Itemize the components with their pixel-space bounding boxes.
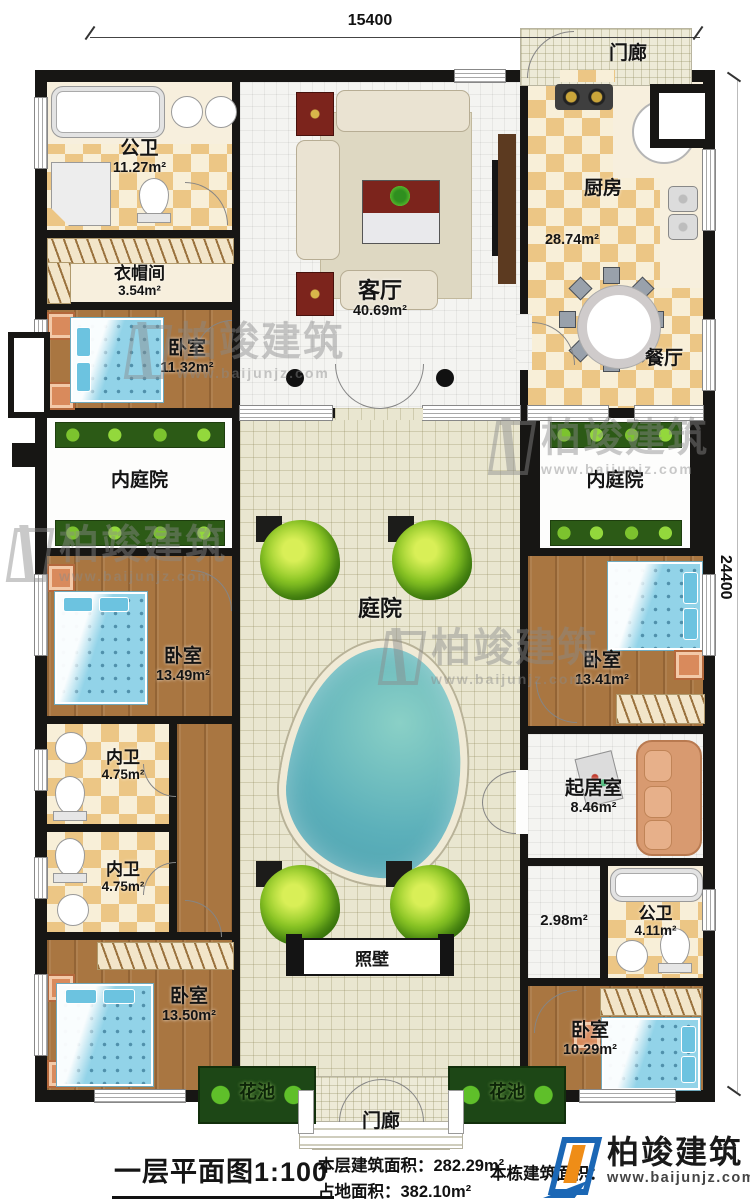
screen-wall-cap [286, 934, 302, 976]
room-label-sitting: 起居室8.46m² [536, 778, 651, 816]
room-label-flowerbed-right: 花池 [450, 1082, 564, 1103]
window [703, 890, 715, 930]
window [35, 98, 47, 168]
column [286, 369, 304, 387]
dining-chair [603, 267, 620, 284]
window [35, 975, 47, 1055]
wall-stub [12, 443, 36, 467]
room-label-flowerbed-left: 花池 [200, 1082, 314, 1103]
column [436, 369, 454, 387]
window [423, 406, 520, 420]
window [580, 1090, 675, 1102]
kitchen-area-label: 28.74m² [528, 232, 616, 249]
room-living: 客厅40.69m² [240, 82, 520, 408]
nightstand [674, 650, 704, 680]
door-opening [516, 770, 528, 834]
plan-body: 公卫11.27m² 衣帽间3.54m² 卧室11.32m² 内庭院 [35, 70, 715, 1102]
room-courtyard-left: 内庭院 [47, 418, 232, 548]
company-logo: 柏竣建筑 www.baijunjz.com [545, 1136, 750, 1198]
wall-niche [8, 332, 50, 418]
stove [555, 84, 613, 110]
room-label-bedroom-a: 卧室11.32m² [135, 338, 239, 376]
room-ensuite-2: 内卫4.75m² [47, 832, 169, 932]
wardrobe [97, 942, 234, 970]
room-ensuite-1: 内卫4.75m² [47, 724, 169, 824]
dimension-line-right [737, 80, 738, 1092]
room-sitting: 起居室8.46m² [528, 734, 703, 858]
nightstand [47, 564, 75, 592]
room-label-porch-top: 门廊 [583, 43, 673, 65]
bathtub [51, 86, 165, 138]
room-label-porch-bottom: 门廊 [313, 1111, 449, 1133]
window [703, 575, 715, 655]
sink [171, 96, 203, 128]
bathtub [610, 868, 703, 902]
door-opening [335, 408, 423, 420]
room-label-bedroom-d: 卧室13.41m² [542, 650, 662, 688]
dimension-tick [727, 1086, 741, 1097]
cloak-rack [47, 238, 234, 264]
wardrobe [600, 988, 702, 1016]
sofa [296, 140, 340, 260]
side-table [296, 92, 334, 136]
dimension-height-label: 24400 [716, 555, 734, 600]
room-hall: 2.98m² [528, 866, 600, 978]
window [635, 406, 703, 420]
land-area-line: 占地面积：382.10m² [318, 1178, 471, 1202]
room-cloakroom: 衣帽间3.54m² [47, 238, 232, 302]
room-label-bedroom-b: 卧室13.49m² [129, 646, 237, 684]
room-label-courtyard-right: 内庭院 [540, 470, 690, 492]
room-label-courtyard: 庭院 [240, 596, 520, 621]
kitchen-sink [668, 214, 698, 240]
screen-wall: 照壁 [302, 938, 442, 976]
door-opening [560, 70, 615, 82]
dining-chair [568, 276, 592, 300]
window [703, 320, 715, 390]
sofa [336, 90, 470, 132]
wardrobe [616, 694, 705, 724]
room-bedroom-a: 卧室11.32m² [47, 310, 232, 408]
room-label-bath-2: 公卫4.11m² [608, 904, 703, 939]
window [703, 150, 715, 230]
dimension-tick [727, 72, 741, 83]
company-logo-url: www.baijunjz.com [607, 1170, 750, 1186]
room-label-ensuite-2: 内卫4.75m² [77, 860, 169, 895]
sink [616, 940, 648, 972]
tree [260, 520, 340, 600]
window [455, 70, 505, 82]
room-bath-2: 公卫4.11m² [608, 866, 703, 978]
room-label-bedroom-c: 卧室13.50m² [137, 986, 241, 1024]
flue-box [650, 84, 714, 148]
company-logo-brand: 柏竣建筑 [607, 1136, 750, 1170]
hedge [55, 520, 225, 546]
porch-post [448, 1090, 464, 1134]
sink [57, 894, 89, 926]
sink [205, 96, 237, 128]
porch-post [298, 1090, 314, 1134]
porch-bottom: 门廊 [312, 1076, 450, 1150]
window [35, 750, 47, 790]
hedge [550, 520, 682, 546]
room-label-bath-main: 公卫11.27m² [47, 138, 232, 176]
flower-bed-right: 花池 [448, 1066, 566, 1124]
room-label-cloakroom: 衣帽间3.54m² [47, 264, 232, 299]
company-logo-icon [545, 1136, 601, 1198]
room-label-screen-wall: 照壁 [355, 945, 389, 970]
tv-cabinet [498, 134, 516, 284]
window [35, 575, 47, 655]
room-label-dining: 餐厅 [628, 348, 700, 370]
plant [390, 186, 410, 206]
room-label-kitchen: 厨房 [558, 178, 648, 200]
pond [270, 631, 480, 893]
room-label-bedroom-e: 卧室10.29m² [534, 1020, 646, 1058]
window [95, 1090, 185, 1102]
toilet [139, 178, 171, 223]
hedge [550, 422, 682, 448]
window [240, 406, 332, 420]
dining-chair [559, 311, 576, 328]
window [528, 406, 608, 420]
hedge [55, 422, 225, 448]
room-bedroom-d: 卧室13.41m² [528, 556, 703, 726]
toilet [55, 776, 87, 821]
window [35, 858, 47, 898]
room-label-living: 客厅40.69m² [240, 278, 520, 320]
tree [392, 520, 472, 600]
bed [608, 562, 702, 650]
tree [390, 865, 470, 945]
floor-area-line: 本层建筑面积：282.29m² [318, 1152, 504, 1176]
plan-title: 一层平面图1:100 [112, 1150, 334, 1199]
dimension-line-top [90, 37, 700, 38]
kitchen-sink [668, 186, 698, 212]
room-label-courtyard-left: 内庭院 [47, 470, 232, 492]
room-label-ensuite-1: 内卫4.75m² [77, 748, 169, 783]
room-courtyard: 庭院 照壁 [240, 418, 520, 1090]
hall-area-label: 2.98m² [528, 912, 600, 929]
room-courtyard-right: 内庭院 [540, 418, 690, 548]
dimension-width-label: 15400 [330, 12, 410, 30]
tv [492, 160, 498, 256]
tree [260, 865, 340, 945]
floorplan-page: 15400 24400 门廊 公卫11.27m² 衣帽间 [0, 0, 750, 1203]
door-opening [516, 314, 532, 370]
